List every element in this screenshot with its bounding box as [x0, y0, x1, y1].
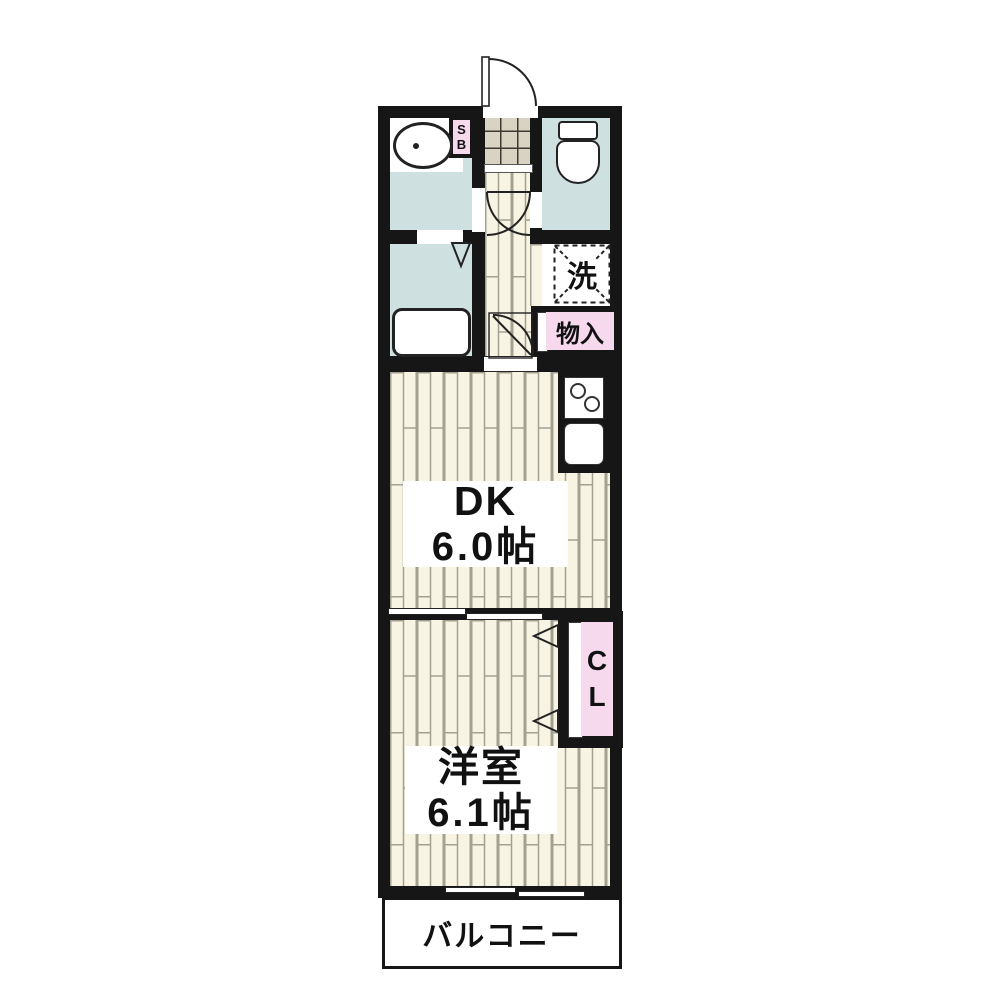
toilet-bowl-icon — [556, 140, 600, 184]
entrance-step — [484, 164, 533, 173]
washbasin-icon — [393, 122, 453, 169]
wall-right — [610, 106, 622, 898]
kitchen-unit — [558, 370, 613, 473]
bathtub-icon — [392, 308, 471, 357]
shoebox-label: S B — [453, 120, 470, 154]
entrance-opening — [483, 106, 538, 118]
shoebox-letter-s: S — [457, 122, 466, 137]
dk-label: DK 6.0帖 — [403, 481, 568, 567]
balcony-label: バルコニー — [422, 911, 581, 955]
stove-burner-icon — [570, 383, 586, 399]
closet-letter-l: L — [588, 679, 605, 715]
sliding-door-panel-right — [466, 613, 543, 620]
wall-left — [378, 106, 390, 898]
hallway-floor — [485, 164, 532, 366]
shoebox-letter-b: B — [457, 137, 466, 152]
washbasin-drain-icon — [413, 143, 419, 149]
stove-burner-icon — [584, 396, 600, 412]
bathroom-door-opening — [417, 230, 463, 244]
laundry-label: 洗 — [553, 246, 611, 302]
kitchen-sink-icon — [564, 423, 604, 465]
floorplan-canvas: S B 洗 物入 C L DK 6.0帖 — [0, 0, 1000, 1000]
wall-laundry-top — [530, 230, 622, 244]
toilet-door-opening — [530, 192, 542, 228]
balcony-window-panel-right — [518, 891, 585, 897]
balcony: バルコニー — [382, 897, 622, 969]
washroom-door-opening — [472, 188, 485, 232]
dk-door-opening — [484, 356, 537, 372]
stove-panel — [564, 377, 604, 419]
entrance-tile-floor — [483, 117, 533, 166]
storage-label: 物入 — [546, 312, 614, 350]
dk-size: 6.0帖 — [432, 524, 540, 570]
closet-label: C L — [581, 626, 613, 732]
sliding-door-panel-left — [388, 608, 466, 615]
western-room-name: 洋室 — [438, 744, 524, 790]
dk-name: DK — [454, 478, 517, 524]
toilet-tank-icon — [558, 121, 598, 140]
balcony-window-panel-left — [445, 887, 516, 893]
western-room-size: 6.1帖 — [427, 790, 535, 836]
entrance-door-arc — [489, 59, 536, 106]
western-room-label: 洋室 6.1帖 — [405, 746, 557, 834]
entrance-door-leaf — [482, 57, 489, 106]
closet-letter-c: C — [587, 643, 607, 679]
